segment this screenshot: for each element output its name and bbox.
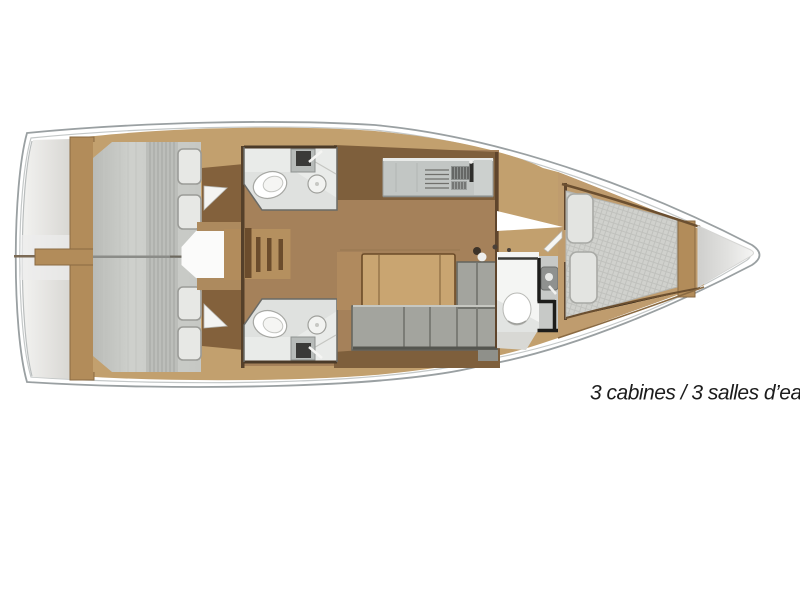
svg-text:3 cabines / 3 salles d’eau: 3 cabines / 3 salles d’eau	[590, 382, 800, 405]
